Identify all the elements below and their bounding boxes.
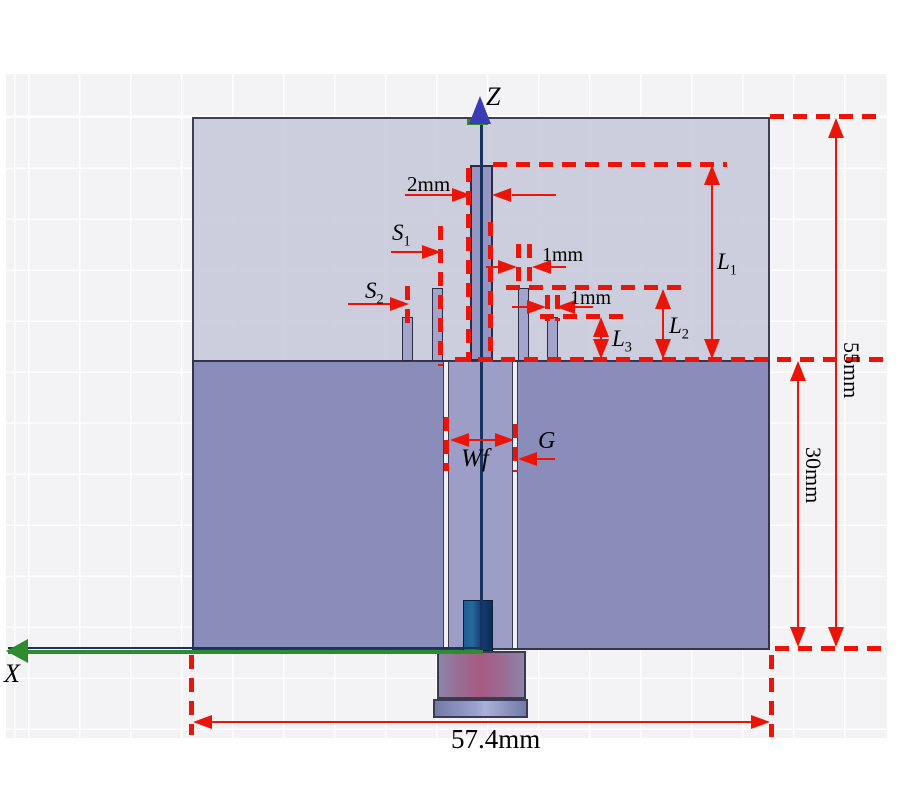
parasitic-strip-right-long — [518, 288, 529, 361]
x-axis-shadow-line — [8, 647, 482, 649]
dim-arrow-icon — [655, 339, 671, 359]
ref-line-substrate-top — [770, 114, 877, 119]
ref-tick-feed-left — [444, 417, 449, 471]
dim-label-g: G — [538, 429, 555, 453]
dim-arrow-icon — [390, 297, 409, 311]
dim-574mm-line — [211, 721, 752, 723]
coax-feed-pin — [463, 600, 493, 651]
coax-connector-flange — [433, 699, 528, 718]
dim-arrow-icon — [422, 245, 441, 259]
dim-label-2mm: 2mm — [407, 174, 450, 195]
x-axis-label: X — [4, 661, 20, 687]
dim-1mm-lower-tail-left — [512, 306, 527, 308]
dim-arrow-icon — [790, 627, 806, 647]
ref-line-short-strip-top — [540, 314, 629, 319]
dim-label-l1: L1 — [717, 250, 737, 278]
parasitic-strip-right-short — [547, 317, 558, 361]
x-axis-line — [8, 650, 483, 654]
dim-arrow-icon — [751, 715, 770, 729]
dim-l1-line — [711, 167, 713, 358]
dim-arrow-icon — [518, 452, 537, 466]
dim-1mm-upper-tail-right — [551, 266, 566, 268]
dim-arrow-icon — [828, 627, 844, 647]
dim-label-55mm: 55mm — [840, 342, 862, 398]
dim-arrow-icon — [193, 715, 212, 729]
dim-arrow-icon — [495, 433, 514, 447]
dim-1mm-upper-tail-left — [486, 266, 498, 268]
dim-arrow-icon — [492, 188, 511, 202]
dim-label-1mm-upper: 1mm — [542, 245, 583, 265]
dim-30mm-line — [797, 363, 799, 645]
dim-label-1mm-lower: 1mm — [570, 288, 611, 308]
dim-arrow-icon — [527, 300, 546, 314]
z-axis-label: Z — [486, 84, 500, 110]
antenna-geometry-figure: Z X 2mm S1 1mm S2 1mm L1 L2 — [0, 0, 900, 800]
dim-label-574mm: 57.4mm — [451, 726, 540, 753]
dim-label-l2: L2 — [669, 314, 689, 342]
dim-s1-tail — [391, 251, 422, 253]
dim-arrow-icon — [452, 188, 471, 202]
cpw-slot-right — [512, 362, 518, 648]
ref-line-monopole-top — [493, 162, 727, 167]
dim-label-30mm: 30mm — [802, 447, 824, 503]
dim-55mm-line — [835, 120, 837, 645]
coax-connector-body — [437, 651, 526, 699]
dim-label-l3: L3 — [612, 327, 632, 355]
ref-line-monopole-right — [488, 222, 493, 362]
z-axis-line — [480, 103, 483, 650]
dim-2mm-tail-right — [512, 194, 556, 196]
dim-wf-line — [467, 439, 497, 441]
dim-arrow-icon — [704, 339, 720, 359]
dim-label-wf: Wf — [461, 446, 489, 471]
dim-arrow-icon — [593, 339, 609, 359]
dim-label-s1: S1 — [392, 221, 411, 249]
dim-g-tail — [536, 458, 555, 460]
dim-label-s2: S2 — [365, 279, 384, 307]
dim-arrow-icon — [498, 260, 517, 274]
